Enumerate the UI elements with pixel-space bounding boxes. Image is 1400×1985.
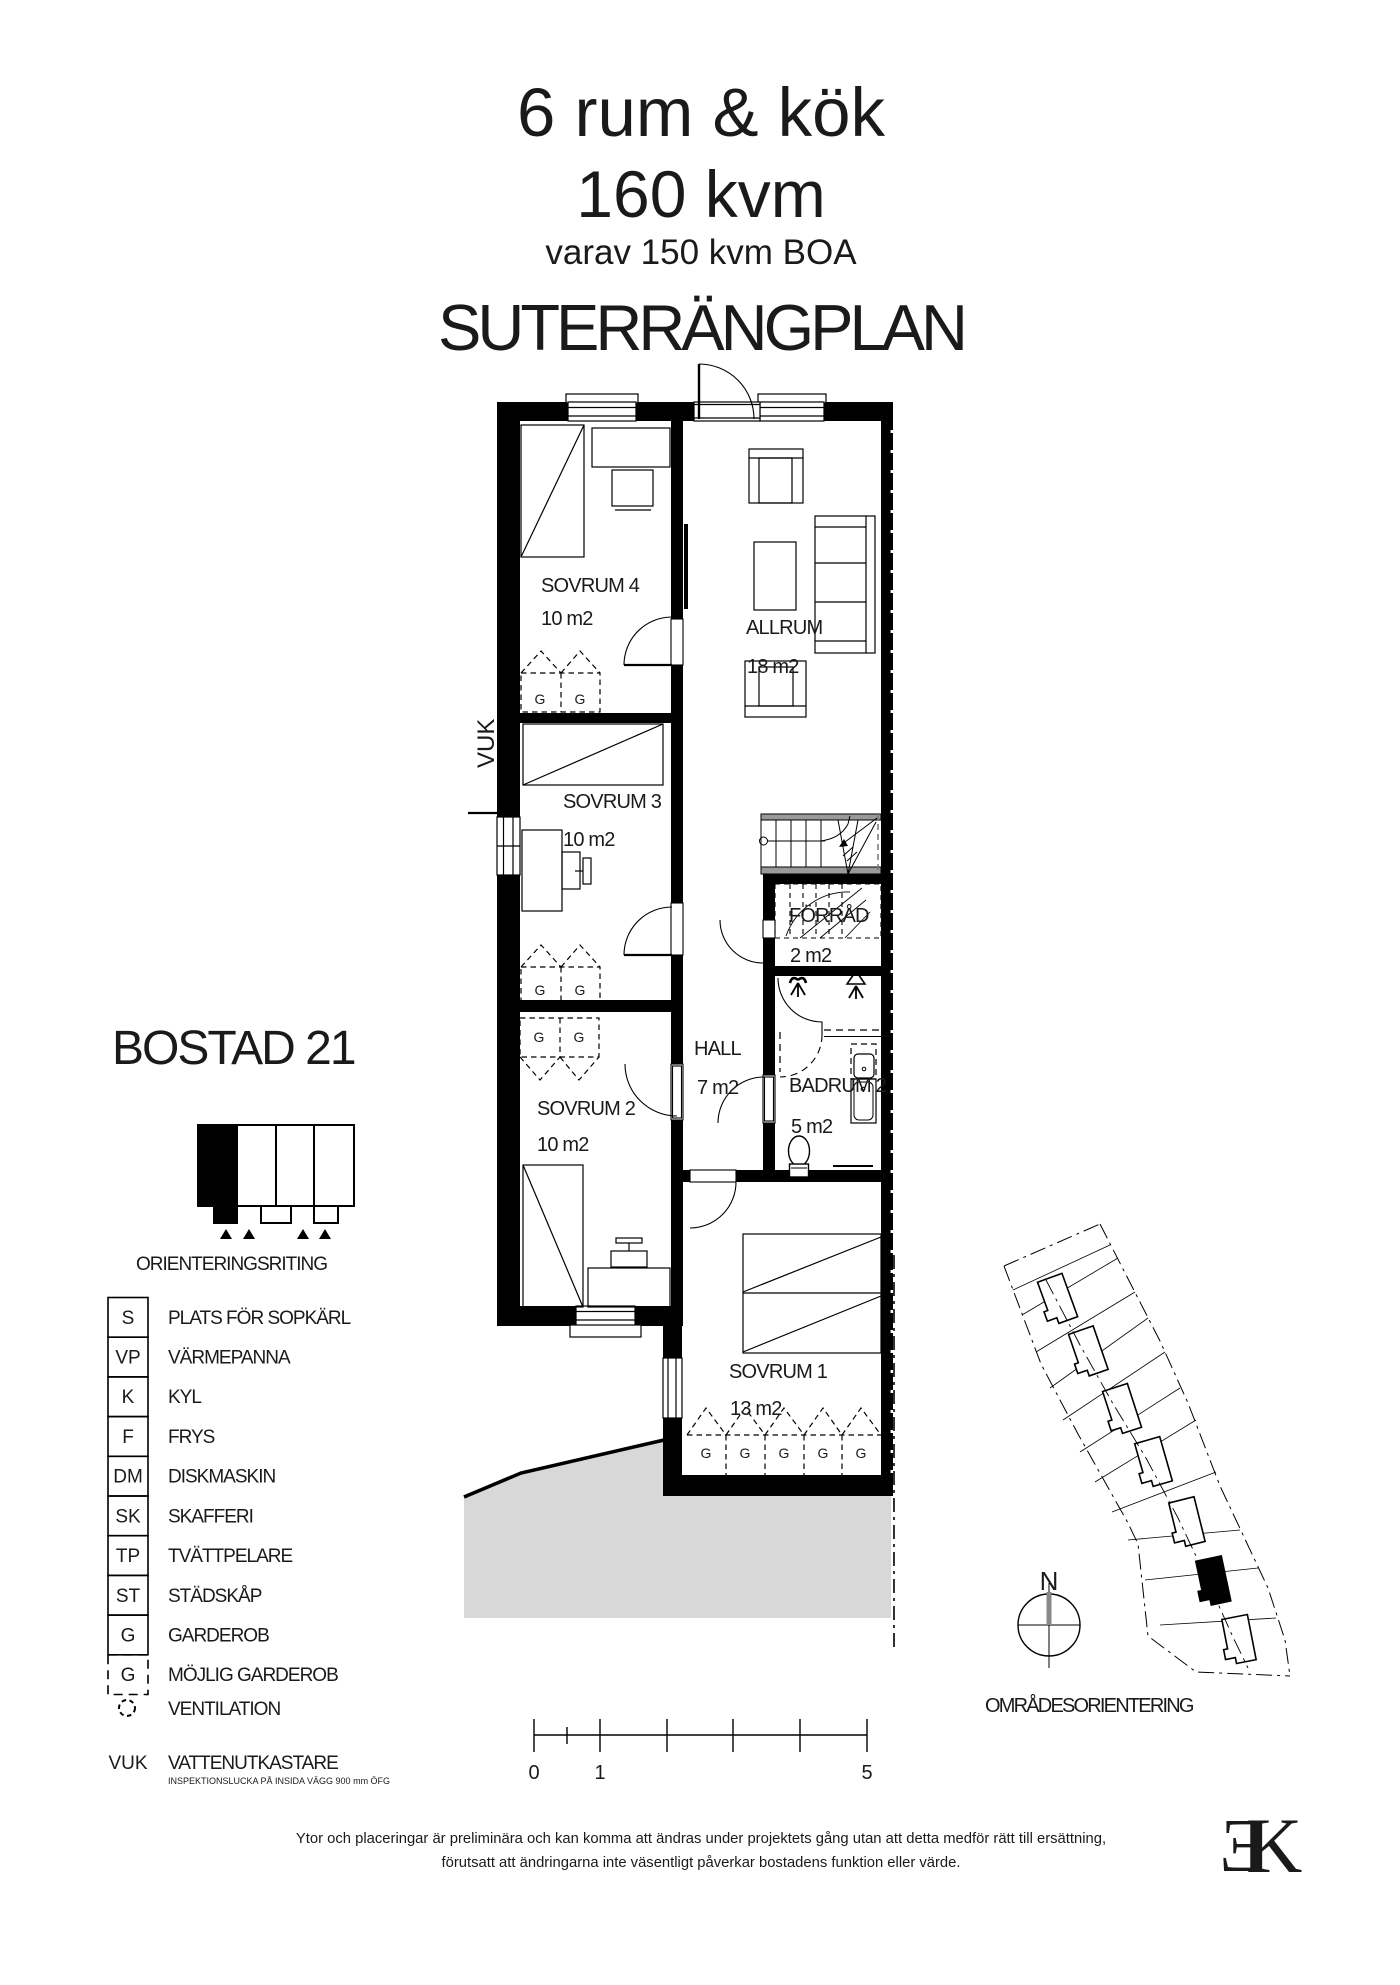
svg-text:DISKMASKIN: DISKMASKIN (168, 1467, 275, 1488)
svg-text:F: F (122, 1427, 134, 1448)
svg-text:GARDEROB: GARDEROB (168, 1625, 269, 1646)
svg-text:G: G (534, 1029, 545, 1045)
svg-text:G: G (535, 982, 546, 998)
svg-text:SKAFFERI: SKAFFERI (168, 1506, 253, 1527)
svg-text:ORIENTERINGSRITING: ORIENTERINGSRITING (136, 1254, 327, 1275)
svg-text:G: G (856, 1445, 867, 1461)
svg-text:G: G (575, 691, 586, 707)
svg-text:VENTILATION: VENTILATION (168, 1699, 280, 1720)
svg-text:BADRUM 2: BADRUM 2 (789, 1075, 887, 1097)
svg-text:TP: TP (116, 1546, 140, 1567)
svg-text:G: G (121, 1665, 136, 1686)
svg-text:S: S (122, 1308, 135, 1329)
svg-text:N: N (1040, 1566, 1059, 1596)
svg-text:BOSTAD 21: BOSTAD 21 (112, 1022, 355, 1075)
svg-text:G: G (121, 1625, 136, 1646)
svg-text:ALLRUM: ALLRUM (746, 617, 822, 639)
svg-text:13 m2: 13 m2 (730, 1398, 782, 1420)
svg-text:FRYS: FRYS (168, 1427, 215, 1448)
svg-text:VUK: VUK (108, 1753, 147, 1774)
svg-text:STÄDSKÅP: STÄDSKÅP (168, 1586, 262, 1607)
svg-text:5: 5 (861, 1762, 872, 1784)
svg-text:MÖJLIG GARDEROB: MÖJLIG GARDEROB (168, 1665, 338, 1686)
svg-text:18 m2: 18 m2 (747, 656, 799, 678)
svg-text:K: K (122, 1387, 135, 1408)
svg-text:SOVRUM 4: SOVRUM 4 (541, 575, 640, 597)
svg-text:VUK: VUK (473, 719, 500, 768)
svg-text:6 rum & kök: 6 rum & kök (517, 74, 886, 151)
svg-text:HALL: HALL (694, 1038, 742, 1060)
svg-text:1: 1 (594, 1762, 605, 1784)
svg-text:FÖRRÅD: FÖRRÅD (789, 904, 869, 927)
svg-text:OMRÅDESORIENTERING: OMRÅDESORIENTERING (985, 1694, 1194, 1717)
svg-text:10 m2: 10 m2 (563, 829, 615, 851)
svg-text:G: G (575, 982, 586, 998)
svg-text:VATTENUTKASTARE: VATTENUTKASTARE (168, 1753, 338, 1774)
svg-text:10 m2: 10 m2 (537, 1134, 589, 1156)
svg-text:PLATS FÖR SOPKÄRL: PLATS FÖR SOPKÄRL (168, 1308, 351, 1329)
svg-text:SOVRUM 2: SOVRUM 2 (537, 1098, 636, 1120)
svg-text:förutsatt att ändringarna inte: förutsatt att ändringarna inte väsentlig… (441, 1855, 960, 1871)
svg-text:G: G (740, 1445, 751, 1461)
svg-text:VÄRMEPANNA: VÄRMEPANNA (168, 1348, 291, 1369)
svg-text:SOVRUM 3: SOVRUM 3 (563, 791, 662, 813)
svg-text:5 m2: 5 m2 (791, 1116, 833, 1138)
svg-text:DM: DM (113, 1467, 143, 1488)
svg-text:INSPEKTIONSLUCKA PÅ INSIDA VÄG: INSPEKTIONSLUCKA PÅ INSIDA VÄGG 900 mm Ö… (168, 1776, 390, 1786)
svg-text:ST: ST (116, 1586, 141, 1607)
svg-text:G: G (535, 691, 546, 707)
svg-text:7 m2: 7 m2 (697, 1077, 739, 1099)
svg-text:160 kvm: 160 kvm (576, 157, 825, 231)
svg-text:varav 150 kvm BOA: varav 150 kvm BOA (545, 233, 857, 272)
svg-text:2 m2: 2 m2 (790, 945, 832, 967)
svg-text:SK: SK (115, 1506, 141, 1527)
svg-text:10 m2: 10 m2 (541, 608, 593, 630)
svg-text:Ytor och placeringar är prelim: Ytor och placeringar är preliminära och … (296, 1831, 1106, 1847)
svg-text:G: G (818, 1445, 829, 1461)
svg-text:G: G (779, 1445, 790, 1461)
svg-text:SOVRUM 1: SOVRUM 1 (729, 1361, 828, 1383)
svg-text:SUTERRÄNGPLAN: SUTERRÄNGPLAN (438, 291, 964, 364)
svg-text:TVÄTTPELARE: TVÄTTPELARE (168, 1546, 292, 1567)
svg-text:VP: VP (115, 1348, 140, 1369)
svg-text:KYL: KYL (168, 1387, 201, 1408)
svg-text:0: 0 (528, 1762, 539, 1784)
svg-text:G: G (701, 1445, 712, 1461)
svg-text:G: G (574, 1029, 585, 1045)
svg-text:K: K (1246, 1802, 1302, 1889)
